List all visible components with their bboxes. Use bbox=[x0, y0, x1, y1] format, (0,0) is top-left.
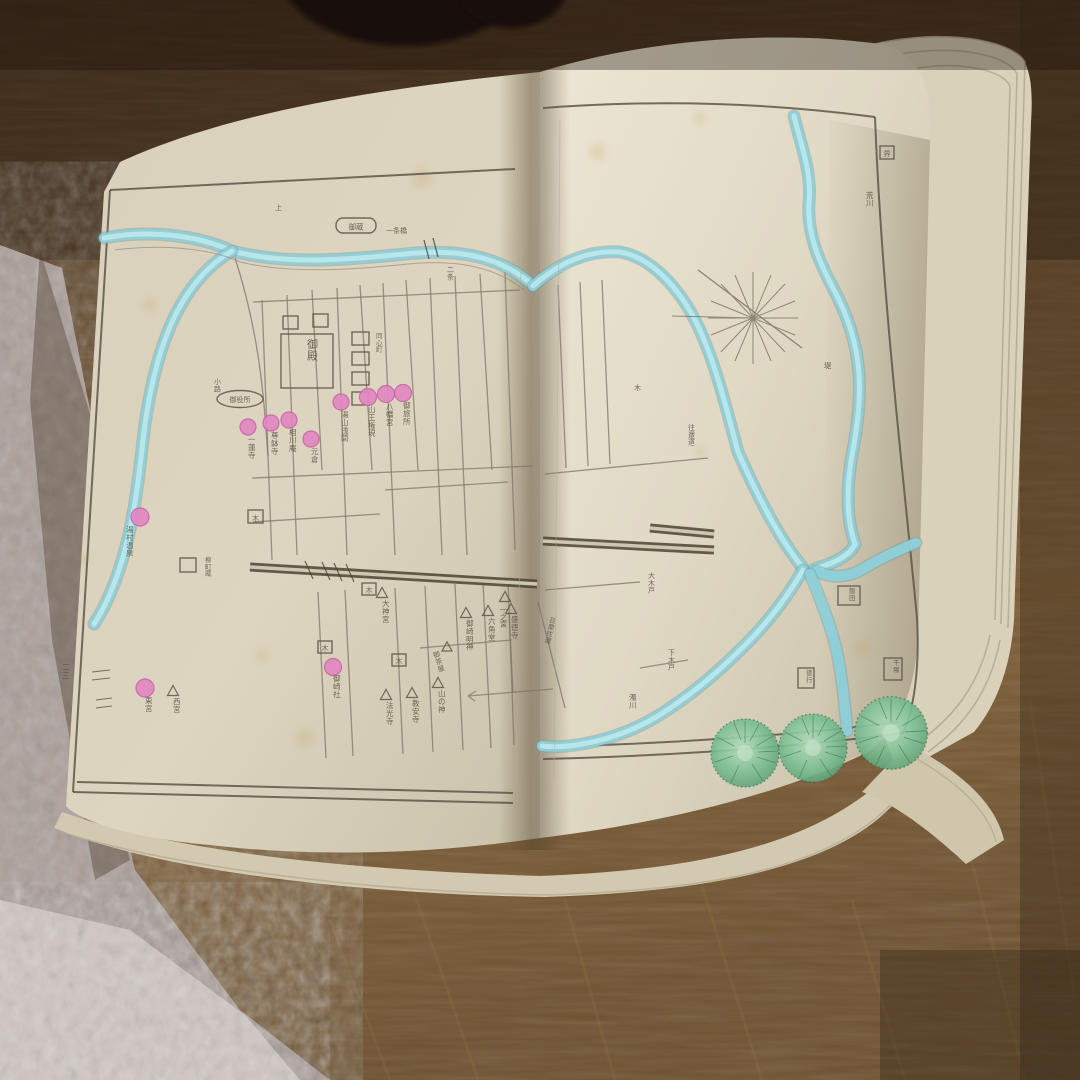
tree-icon bbox=[711, 719, 779, 787]
shrine-marker bbox=[240, 419, 256, 435]
barracks-label: 同心町 bbox=[376, 332, 383, 354]
shrine-marker bbox=[131, 508, 149, 526]
storehouse-cartouche-label: 御蔵 bbox=[349, 222, 364, 232]
temple-label: 西宮 bbox=[173, 697, 181, 714]
bridge-label-2: 二条 bbox=[447, 266, 454, 281]
page-number: 二三 bbox=[62, 663, 70, 680]
shrine-label: 一蓮寺 bbox=[248, 435, 256, 460]
village-label: 徳行 bbox=[806, 668, 813, 684]
village-label: 界 bbox=[884, 150, 891, 158]
misc-char: 木 bbox=[634, 383, 641, 392]
palace-label: 御殿 bbox=[307, 337, 318, 363]
tree-icon bbox=[855, 697, 928, 770]
shrine-label: 山王権現 bbox=[368, 404, 376, 438]
top-shadow bbox=[0, 0, 1080, 70]
shrine-label: 御旅所 bbox=[403, 400, 411, 426]
village-label: 千塚 bbox=[893, 658, 900, 674]
river-label: 濁川 bbox=[629, 692, 637, 710]
shrine-label: 御崎社 bbox=[333, 673, 341, 699]
temple-label: 山の神 bbox=[438, 688, 446, 714]
temple-label: 一之宮 bbox=[500, 606, 507, 629]
river-label: 荒川 bbox=[866, 190, 874, 208]
temple-label: 法光寺 bbox=[386, 700, 394, 726]
temple-label: 大神宮 bbox=[382, 598, 390, 624]
gate-char: 木 bbox=[322, 644, 329, 653]
gate-char: 木 bbox=[252, 514, 259, 523]
shrine-marker bbox=[136, 679, 154, 697]
road-label: 下木戸 bbox=[668, 649, 675, 672]
gate-char: 木 bbox=[396, 657, 403, 666]
gate-char: 木 bbox=[366, 586, 373, 595]
bridge-label: 一条橋 bbox=[386, 226, 407, 235]
shrine-label: 尊躰寺 bbox=[271, 430, 279, 456]
top-margin-char: 上 bbox=[275, 203, 282, 212]
lane-label: 小路 bbox=[214, 377, 221, 393]
river-label: 堤 bbox=[824, 360, 832, 370]
shrine-marker bbox=[303, 431, 319, 447]
shrine-marker bbox=[325, 659, 342, 676]
shrine-marker bbox=[395, 385, 412, 402]
tree-icon bbox=[779, 714, 847, 782]
storehouse-square-label: 柳町蔵 bbox=[205, 555, 212, 578]
temple-label: 六角堂 bbox=[488, 616, 496, 642]
shrine-marker bbox=[378, 386, 395, 403]
shrine-label: 八幡宮 bbox=[386, 402, 394, 427]
office-cartouche-label: 御役所 bbox=[230, 395, 251, 404]
shrine-marker bbox=[360, 389, 377, 406]
shrine-label: 東宮 bbox=[145, 695, 153, 713]
shrine-label: 湯山浅間 bbox=[341, 409, 349, 443]
shrine-marker bbox=[333, 394, 349, 410]
shrine-marker bbox=[263, 415, 279, 431]
temple-label: 教安寺 bbox=[412, 698, 420, 724]
temple-label: 盛徳寺 bbox=[511, 614, 519, 640]
shrine-label: 湯村温泉 bbox=[126, 524, 134, 558]
shrine-label: 元倉 bbox=[311, 447, 319, 464]
road-label: 大木戸 bbox=[648, 571, 655, 595]
village-label: 飯田 bbox=[849, 586, 856, 602]
photo-of-old-map-book: 御殿 同心町 御蔵 御役所 木 木 木 木 柳町蔵 bbox=[0, 0, 1080, 1080]
temple-label: 御崎明神 bbox=[466, 618, 474, 652]
shrine-label: 相川庵 bbox=[289, 427, 297, 453]
road-label: 往還道 bbox=[688, 423, 695, 447]
shrine-marker bbox=[281, 412, 297, 428]
